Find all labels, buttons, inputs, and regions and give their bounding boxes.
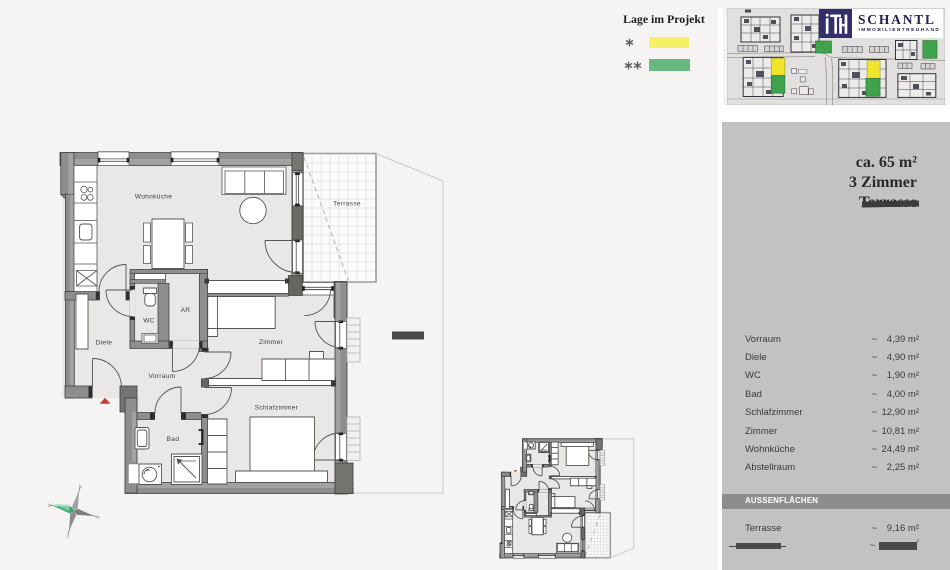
svg-text:WC: WC: [143, 318, 155, 325]
svg-text:S: S: [66, 534, 70, 540]
svg-text:AR: AR: [181, 307, 191, 314]
svg-text:Wohnküche: Wohnküche: [135, 194, 172, 201]
svg-text:Zimmer: Zimmer: [259, 339, 284, 346]
svg-text:Vorraum: Vorraum: [148, 373, 175, 380]
svg-text:Diele: Diele: [96, 340, 113, 347]
svg-text:Schlafzimmer: Schlafzimmer: [255, 405, 299, 412]
svg-text:Bad: Bad: [167, 436, 180, 443]
svg-text:O: O: [96, 515, 101, 521]
svg-text:Terrasse: Terrasse: [333, 201, 361, 208]
svg-text:N: N: [78, 483, 82, 489]
